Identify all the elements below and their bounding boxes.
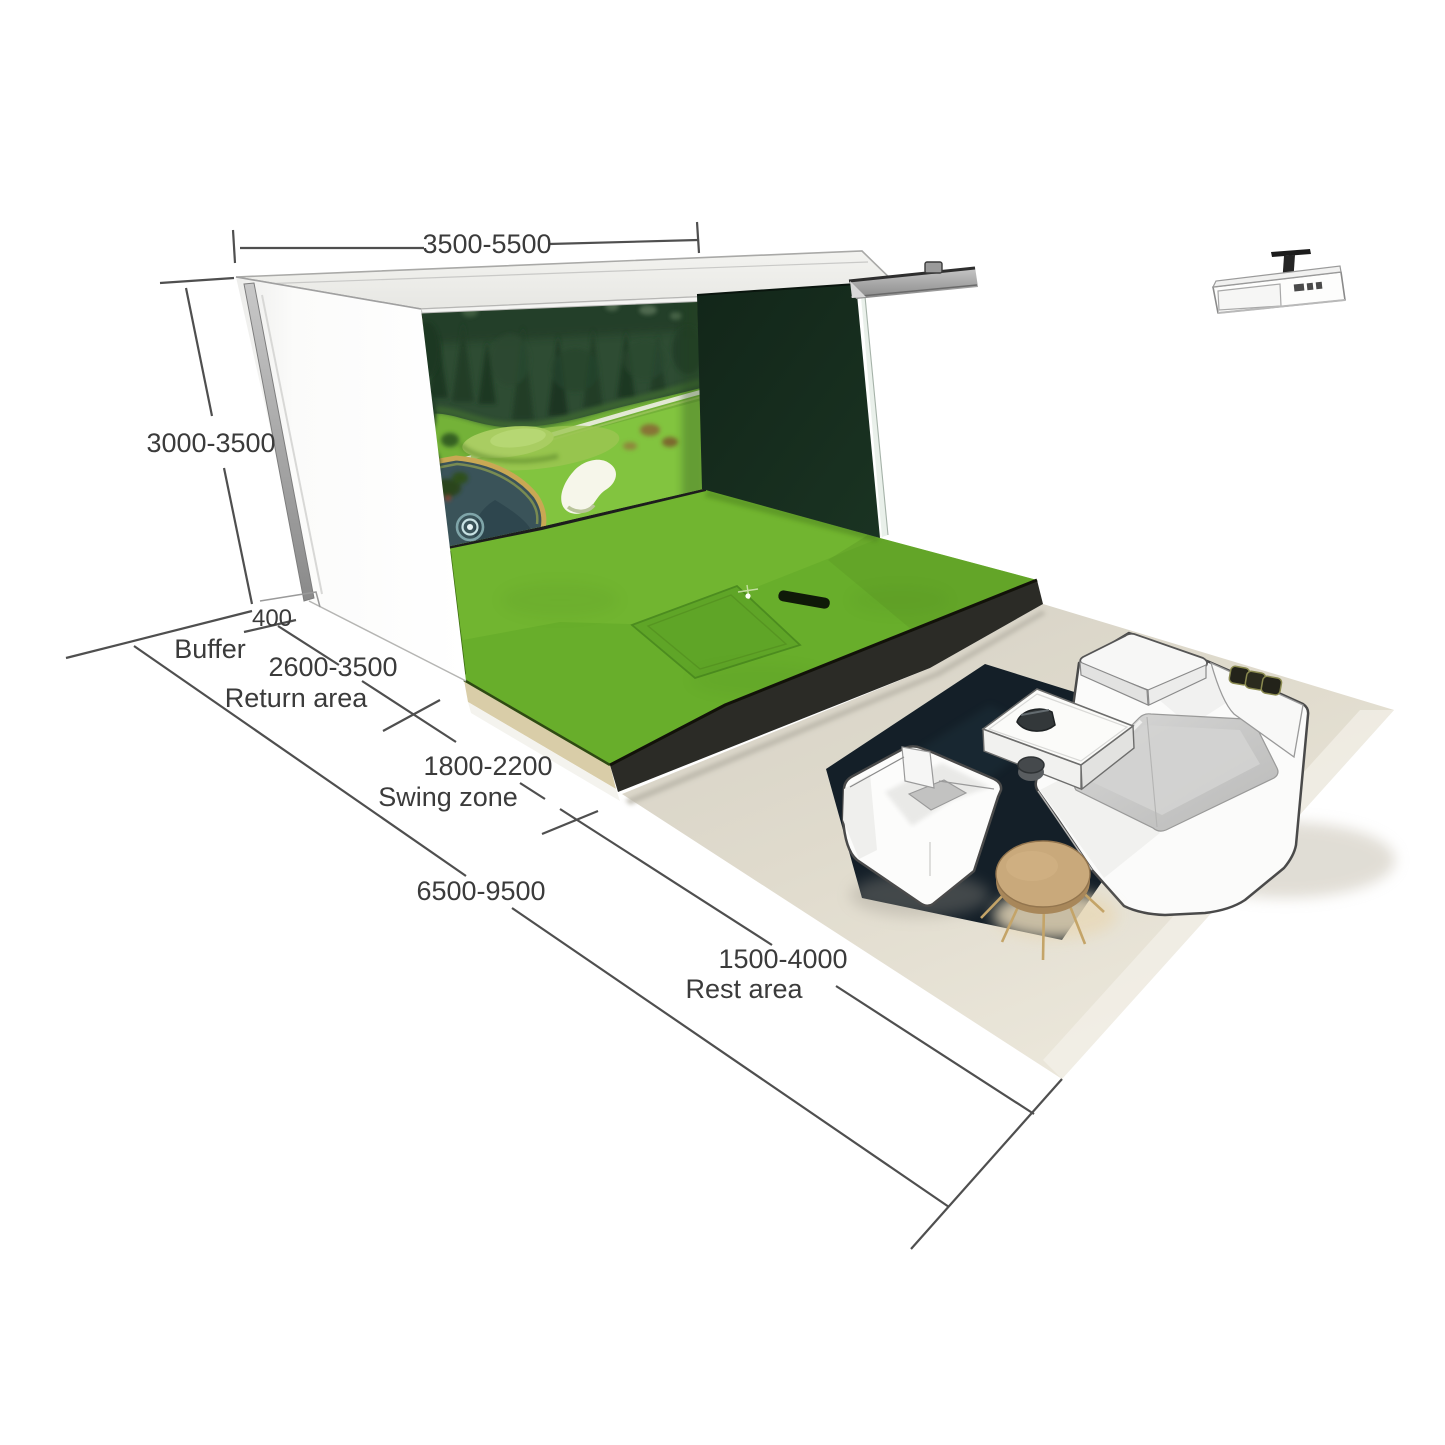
svg-text:1500-4000: 1500-4000 [718, 944, 847, 974]
svg-text:Buffer: Buffer [174, 634, 246, 664]
svg-text:3500-5500: 3500-5500 [422, 229, 551, 259]
svg-text:Swing zone: Swing zone [378, 782, 518, 812]
svg-text:3000-3500: 3000-3500 [146, 428, 275, 458]
svg-text:Return area: Return area [225, 683, 369, 713]
svg-text:1800-2200: 1800-2200 [423, 751, 552, 781]
svg-text:6500-9500: 6500-9500 [416, 876, 545, 906]
svg-text:2600-3500: 2600-3500 [268, 652, 397, 682]
svg-text:Rest area: Rest area [685, 974, 803, 1004]
svg-text:400: 400 [252, 605, 292, 632]
